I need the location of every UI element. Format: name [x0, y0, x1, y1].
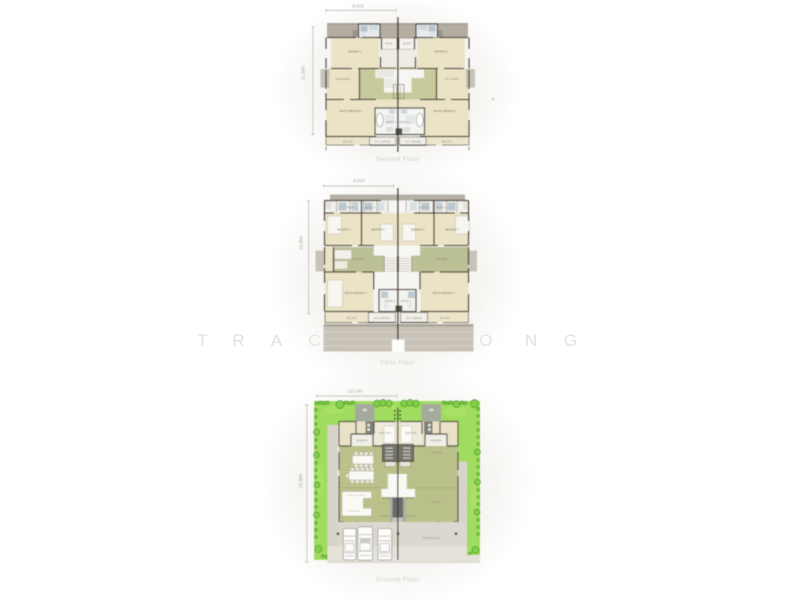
svg-text:8,910: 8,910: [353, 178, 365, 183]
svg-text:BEDRM 3: BEDRM 3: [337, 228, 351, 232]
svg-text:R: R: [232, 331, 244, 350]
svg-text:BLCNY: BLCNY: [343, 140, 353, 144]
svg-text:A/C LEDGE: A/C LEDGE: [405, 140, 421, 144]
svg-text:DRY KIT: DRY KIT: [379, 431, 391, 435]
svg-text:24,384: 24,384: [298, 474, 303, 488]
svg-text:13,190: 13,190: [348, 389, 362, 394]
svg-text:BEDRM 2: BEDRM 2: [411, 228, 425, 232]
svg-text:CAR PORCH: CAR PORCH: [422, 536, 440, 540]
svg-text:PORCH: PORCH: [380, 514, 389, 518]
svg-text:BLCNY: BLCNY: [440, 316, 450, 320]
svg-text:BATH 3: BATH 3: [347, 206, 358, 210]
svg-text:BATH 1: BATH 1: [401, 299, 412, 303]
svg-text:Ground Floor: Ground Floor: [376, 577, 420, 584]
svg-text:BATH 2: BATH 2: [365, 206, 376, 210]
svg-text:BATH 1: BATH 1: [386, 120, 397, 124]
svg-text:11,950: 11,950: [301, 66, 306, 80]
svg-text:A/C LEDGE: A/C LEDGE: [374, 140, 390, 144]
svg-text:A/C LEDGE: A/C LEDGE: [406, 316, 422, 320]
svg-text:T: T: [197, 331, 207, 350]
svg-text:W.DP: W.DP: [403, 42, 411, 46]
svg-text:FAM RM: FAM RM: [435, 257, 447, 261]
svg-text:BEDRM 3: BEDRM 3: [445, 228, 459, 232]
svg-text:DINING: DINING: [432, 451, 443, 455]
svg-text:BLCNY: BLCNY: [347, 316, 357, 320]
svg-text:A/C LEDGE: A/C LEDGE: [374, 316, 390, 320]
svg-text:BATH 1: BATH 1: [399, 120, 410, 124]
svg-text:PORCH: PORCH: [406, 514, 415, 518]
svg-text:LDY AREA: LDY AREA: [445, 77, 460, 81]
svg-text:BATH 2: BATH 2: [419, 206, 430, 210]
svg-text:13,950: 13,950: [299, 236, 304, 250]
svg-text:FAM AREA: FAM AREA: [335, 77, 350, 81]
svg-text:LIVING: LIVING: [431, 500, 442, 504]
svg-text:FAM RM: FAM RM: [351, 257, 363, 261]
svg-text:BEDRM 2: BEDRM 2: [434, 50, 448, 54]
svg-text:MSTR BEDRM 1: MSTR BEDRM 1: [340, 109, 363, 113]
svg-text:A: A: [271, 331, 283, 350]
svg-text:N: N: [525, 331, 537, 350]
svg-text:BATH 3: BATH 3: [437, 206, 448, 210]
svg-text:G: G: [564, 331, 577, 350]
svg-text:BEDRM 2: BEDRM 2: [371, 228, 385, 232]
svg-text:MSTR BEDRM 1: MSTR BEDRM 1: [434, 109, 457, 113]
svg-text:BLCNY: BLCNY: [442, 140, 452, 144]
svg-text:W.BATH: W.BATH: [430, 439, 441, 443]
svg-text:W.DP: W.DP: [385, 42, 393, 46]
svg-text:8,910: 8,910: [352, 4, 364, 9]
svg-text:DRY KIT: DRY KIT: [405, 431, 417, 435]
svg-text:MSTR BEDRM 1: MSTR BEDRM 1: [345, 291, 368, 295]
svg-text:BEDRM 2: BEDRM 2: [348, 50, 362, 54]
svg-text:BATH 1: BATH 1: [385, 299, 396, 303]
svg-text:MSTR BEDRM 1: MSTR BEDRM 1: [433, 291, 456, 295]
svg-text:W.BATH: W.BATH: [356, 439, 367, 443]
